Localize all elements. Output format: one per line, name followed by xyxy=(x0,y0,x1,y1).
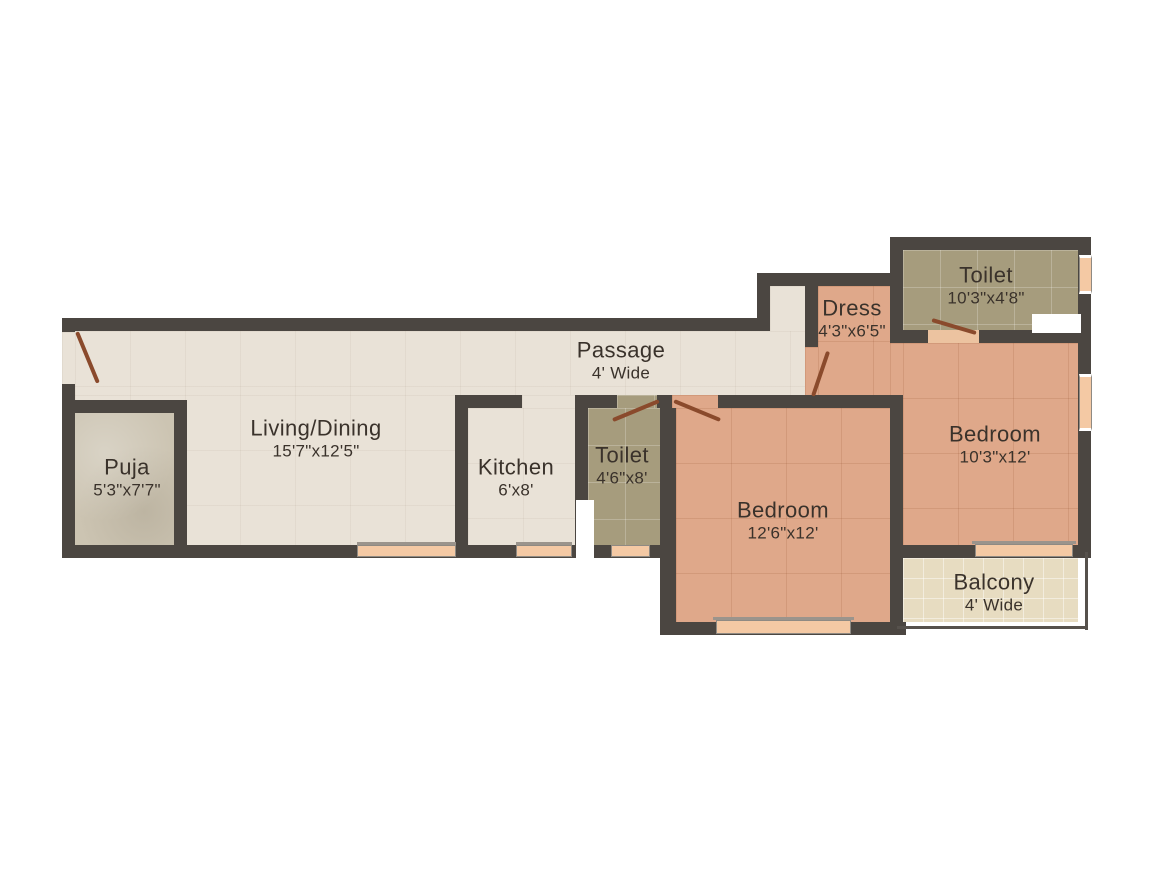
shaft-near-toilet-small xyxy=(576,500,594,558)
floor-passage-extension xyxy=(770,286,805,331)
toilet-big-window xyxy=(1079,255,1092,294)
floor-toilet-small xyxy=(588,408,660,545)
kitchen-window xyxy=(516,545,572,557)
bedroom-left-window xyxy=(716,620,851,634)
opening-kitchen-entry xyxy=(522,395,575,408)
floor-puja xyxy=(75,413,174,545)
wall-left-bedroom-left xyxy=(660,395,676,635)
balcony-sliding-door xyxy=(975,544,1073,557)
floor-plan: Living/Dining 15'7"x12'5" Puja 5'3"x7'7"… xyxy=(0,0,1160,870)
floor-kitchen xyxy=(468,408,575,545)
wall-dress-divider xyxy=(805,273,818,347)
balcony-railing-bottom xyxy=(897,626,1088,629)
wall-between-bedrooms xyxy=(890,395,903,635)
floor-bedroom-right xyxy=(903,343,1078,545)
floor-dress xyxy=(818,286,890,395)
balcony-railing-right xyxy=(1085,552,1088,630)
wall-top-dress xyxy=(757,273,903,286)
bedroom-right-window xyxy=(1079,374,1092,431)
wall-top-puja xyxy=(62,400,187,413)
floor-dress-connector xyxy=(890,343,903,395)
floor-bedroom-left xyxy=(676,408,890,622)
wall-top-toilet-big xyxy=(890,237,1091,250)
floor-passage xyxy=(75,331,805,395)
opening-main-entrance xyxy=(62,332,75,384)
wall-left-kitchen xyxy=(455,395,468,558)
wall-top-main xyxy=(62,318,770,331)
wall-right-puja xyxy=(174,400,187,558)
duct-toilet-big xyxy=(1032,314,1081,333)
wall-left-toilet-big xyxy=(890,237,903,343)
floor-balcony xyxy=(903,558,1078,622)
wall-top-bedroom-left xyxy=(718,395,903,408)
toilet-small-vent-window xyxy=(611,545,650,557)
living-window xyxy=(357,545,456,557)
wall-left-outer-upper xyxy=(62,318,75,332)
